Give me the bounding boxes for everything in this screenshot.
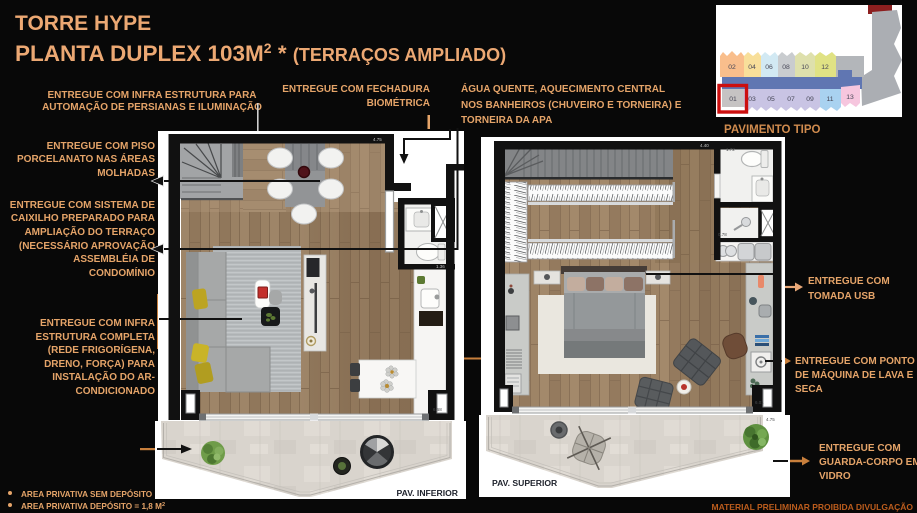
svg-text:ENTREGUE COM FECHADURA: ENTREGUE COM FECHADURA bbox=[282, 84, 430, 95]
svg-text:ENTREGUE COM SISTEMA DE: ENTREGUE COM SISTEMA DE bbox=[10, 200, 156, 211]
svg-text:01: 01 bbox=[729, 96, 737, 103]
svg-text:TORNEIRA DA APA: TORNEIRA DA APA bbox=[461, 115, 552, 126]
svg-text:TOMADA USB: TOMADA USB bbox=[808, 291, 875, 302]
svg-text:AREA PRIVATIVA DEPÓSITO = 1,8: AREA PRIVATIVA DEPÓSITO = 1,8 M2 bbox=[21, 500, 165, 511]
svg-text:SECA: SECA bbox=[795, 384, 823, 395]
svg-text:ENTREGUE COM: ENTREGUE COM bbox=[819, 443, 901, 454]
svg-text:02: 02 bbox=[728, 64, 736, 71]
svg-text:ENTREGUE COM: ENTREGUE COM bbox=[808, 276, 890, 287]
svg-text:AREA PRIVATIVA SEM DEPÓSITO: AREA PRIVATIVA SEM DEPÓSITO bbox=[21, 488, 153, 499]
svg-text:MOLHADAS: MOLHADAS bbox=[97, 168, 155, 179]
svg-text:04: 04 bbox=[748, 64, 756, 71]
svg-text:6.68: 6.68 bbox=[433, 407, 442, 412]
svg-text:BIOMÉTRICA: BIOMÉTRICA bbox=[367, 96, 430, 109]
svg-text:AMPLIAÇÃO DO TERRAÇO: AMPLIAÇÃO DO TERRAÇO bbox=[24, 225, 155, 238]
svg-text:11: 11 bbox=[826, 96, 833, 103]
svg-text:ENTREGUE COM PONTO: ENTREGUE COM PONTO bbox=[795, 356, 915, 367]
svg-text:PORCELANATO NAS ÁREAS: PORCELANATO NAS ÁREAS bbox=[17, 152, 155, 165]
svg-text:CONDOMÍNIO: CONDOMÍNIO bbox=[89, 266, 155, 279]
svg-text:05: 05 bbox=[767, 96, 775, 103]
svg-text:ENTREGUE COM INFRA ESTRUTURA P: ENTREGUE COM INFRA ESTRUTURA PARA bbox=[47, 90, 256, 101]
svg-text:4.75: 4.75 bbox=[373, 137, 382, 142]
svg-text:06: 06 bbox=[765, 64, 773, 71]
svg-text:PAVIMENTO TIPO: PAVIMENTO TIPO bbox=[724, 124, 821, 136]
svg-text:0.78: 0.78 bbox=[718, 232, 727, 237]
svg-text:ENTREGUE COM INFRA: ENTREGUE COM INFRA bbox=[40, 318, 155, 329]
svg-text:AUTOMAÇÃO DE PERSIANAS E ILUMI: AUTOMAÇÃO DE PERSIANAS E ILUMINAÇÃO bbox=[42, 100, 262, 113]
svg-text:INSTALAÇÃO DO AR-: INSTALAÇÃO DO AR- bbox=[52, 370, 155, 383]
svg-text:(NECESSÁRIO APROVAÇÃO: (NECESSÁRIO APROVAÇÃO bbox=[19, 239, 155, 252]
svg-text:6.01: 6.01 bbox=[755, 400, 764, 405]
svg-text:4.40: 4.40 bbox=[700, 143, 709, 148]
svg-text:CONDICIONADO: CONDICIONADO bbox=[76, 386, 156, 397]
svg-text:DRENO, FORÇA) PARA: DRENO, FORÇA) PARA bbox=[44, 359, 155, 370]
svg-text:12: 12 bbox=[821, 64, 829, 71]
svg-text:08: 08 bbox=[782, 64, 790, 71]
svg-text:ASSEMBLÉIA DE: ASSEMBLÉIA DE bbox=[73, 252, 155, 265]
svg-text:VIDRO: VIDRO bbox=[819, 471, 851, 482]
svg-text:10: 10 bbox=[801, 64, 809, 71]
svg-text:ÁGUA QUENTE, AQUECIMENTO CENTR: ÁGUA QUENTE, AQUECIMENTO CENTRAL bbox=[461, 82, 665, 95]
svg-text:MATERIAL PRELIMINAR PROIBIDA D: MATERIAL PRELIMINAR PROIBIDA DIVULGAÇÃO bbox=[712, 502, 914, 512]
svg-text:4.75: 4.75 bbox=[766, 417, 775, 422]
svg-text:09: 09 bbox=[806, 96, 814, 103]
svg-text:PAV. INFERIOR: PAV. INFERIOR bbox=[397, 488, 459, 498]
svg-text:07: 07 bbox=[787, 96, 795, 103]
svg-text:NOS BANHEIROS (CHUVEIRO E TORN: NOS BANHEIROS (CHUVEIRO E TORNEIRA) E bbox=[461, 100, 682, 111]
svg-text:ENTREGUE COM PISO: ENTREGUE COM PISO bbox=[47, 141, 156, 152]
svg-text:03: 03 bbox=[748, 96, 756, 103]
svg-text:ESTRUTURA COMPLETA: ESTRUTURA COMPLETA bbox=[36, 332, 155, 343]
svg-text:DE MÁQUINA DE LAVA E: DE MÁQUINA DE LAVA E bbox=[795, 368, 914, 381]
svg-text:(REDE FRIGORÍGENA,: (REDE FRIGORÍGENA, bbox=[48, 343, 155, 356]
svg-text:13: 13 bbox=[846, 94, 854, 101]
svg-text:PAV. SUPERIOR: PAV. SUPERIOR bbox=[492, 478, 558, 488]
svg-text:1.36: 1.36 bbox=[436, 264, 445, 269]
svg-text:TORRE HYPE: TORRE HYPE bbox=[15, 12, 151, 35]
svg-text:GUARDA-CORPO EM: GUARDA-CORPO EM bbox=[819, 457, 917, 468]
svg-text:CAIXILHO PREPARADO PARA: CAIXILHO PREPARADO PARA bbox=[11, 213, 155, 224]
svg-text:1.72: 1.72 bbox=[726, 147, 735, 152]
